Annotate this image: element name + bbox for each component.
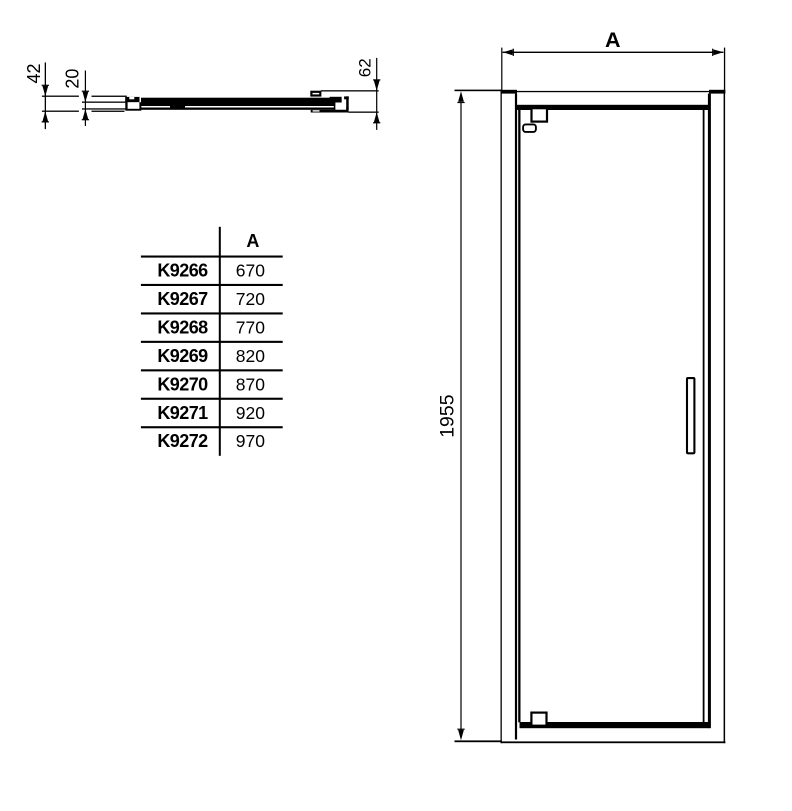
svg-text:K9268: K9268: [157, 318, 208, 338]
svg-text:820: 820: [236, 346, 265, 366]
svg-text:A: A: [605, 28, 621, 52]
svg-text:20: 20: [63, 69, 83, 89]
svg-text:770: 770: [236, 318, 265, 338]
svg-text:K9269: K9269: [157, 346, 208, 366]
svg-text:K9272: K9272: [157, 431, 208, 451]
svg-text:K9271: K9271: [157, 403, 208, 423]
svg-text:970: 970: [236, 431, 265, 451]
svg-text:K9267: K9267: [157, 289, 208, 309]
svg-text:42: 42: [24, 63, 44, 83]
svg-text:62: 62: [356, 58, 375, 77]
svg-text:920: 920: [236, 403, 265, 423]
svg-text:K9266: K9266: [157, 261, 208, 281]
svg-text:1955: 1955: [437, 394, 459, 438]
svg-text:870: 870: [236, 374, 265, 394]
svg-text:A: A: [246, 231, 259, 251]
svg-text:K9270: K9270: [157, 374, 208, 394]
svg-text:670: 670: [236, 261, 265, 281]
svg-text:720: 720: [236, 289, 265, 309]
